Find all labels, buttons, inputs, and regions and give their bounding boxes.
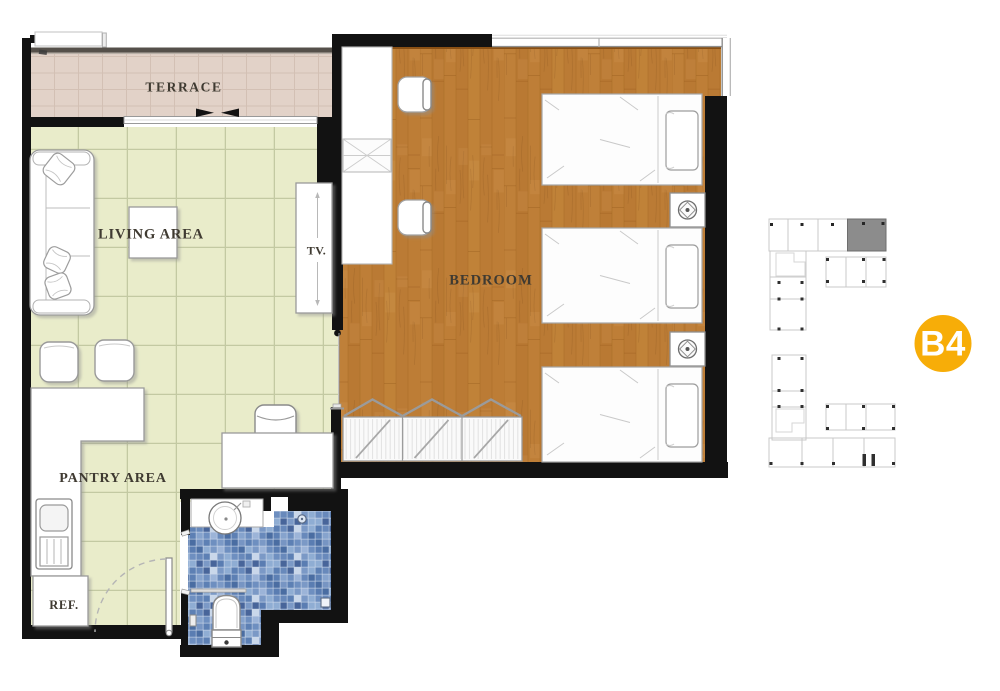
svg-text:B4: B4 <box>920 325 966 364</box>
svg-text:TERRACE: TERRACE <box>145 80 222 95</box>
svg-text:TV.: TV. <box>307 244 327 258</box>
svg-text:PANTRY AREA: PANTRY AREA <box>59 471 167 486</box>
svg-text:BEDROOM: BEDROOM <box>449 273 533 289</box>
svg-text:LIVING AREA: LIVING AREA <box>98 227 204 243</box>
svg-text:REF.: REF. <box>49 598 78 612</box>
